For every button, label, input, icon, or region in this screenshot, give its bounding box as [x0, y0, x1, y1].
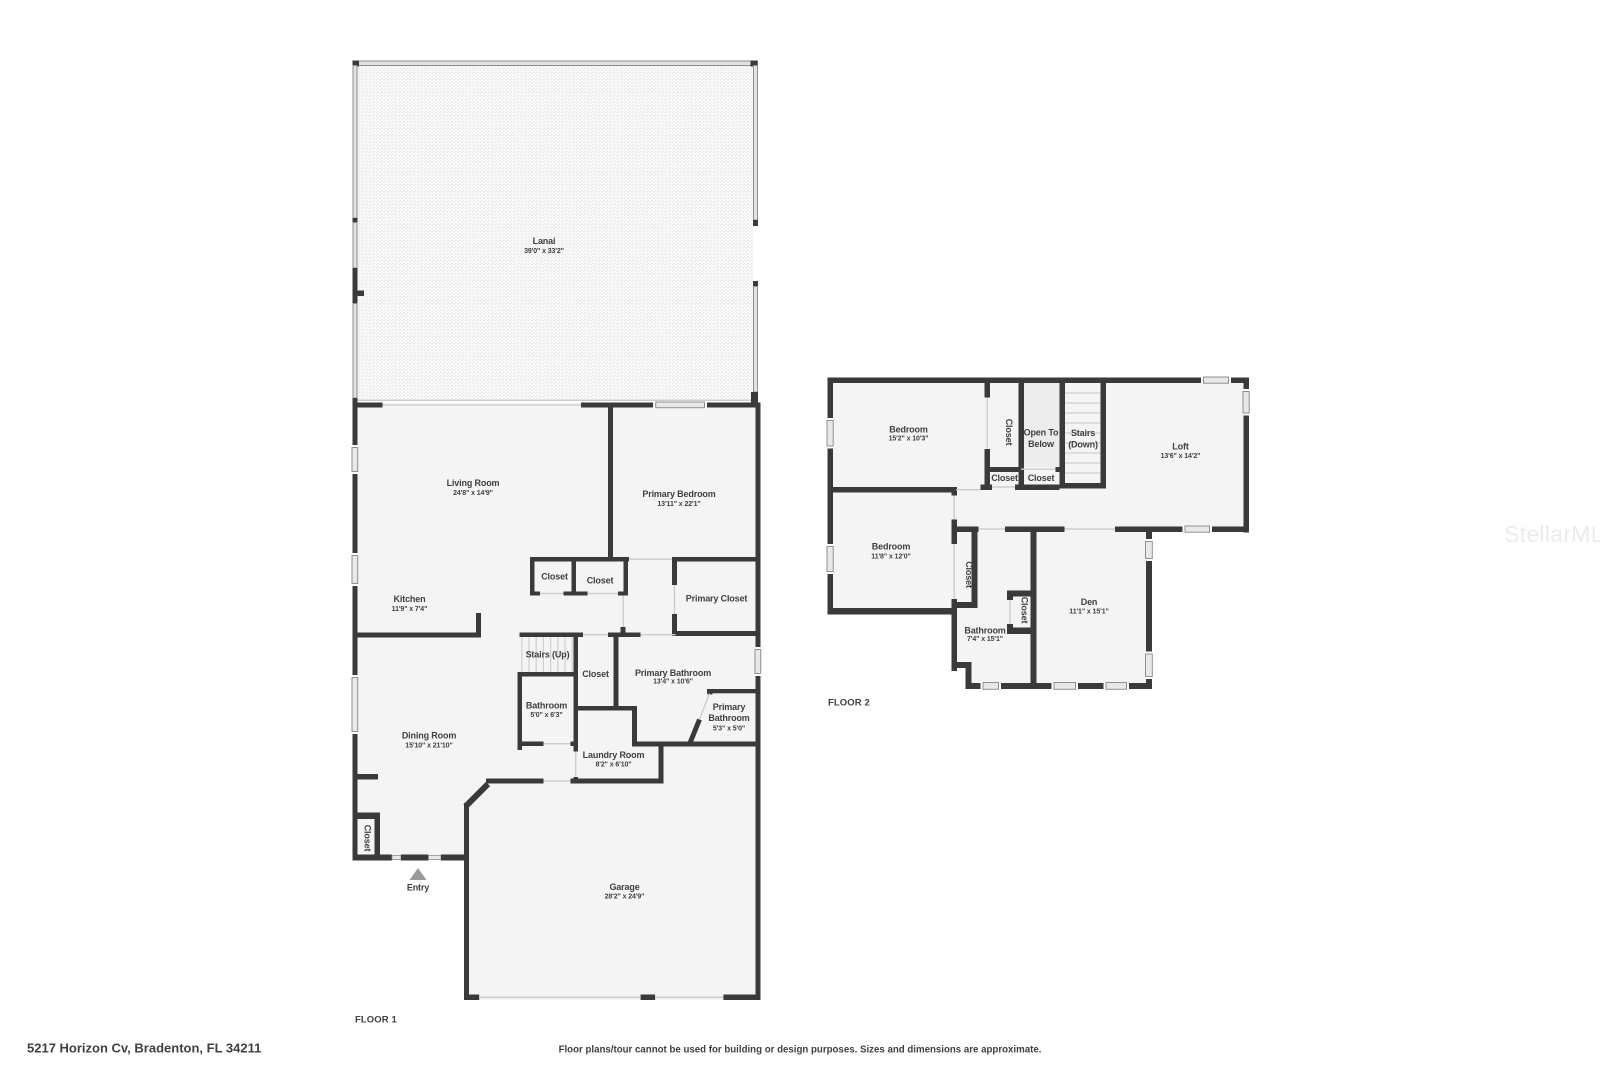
svg-text:Closet: Closet	[1028, 473, 1055, 483]
svg-text:15'2" x 10'3": 15'2" x 10'3"	[889, 436, 929, 443]
svg-text:Stairs (Up): Stairs (Up)	[526, 650, 570, 660]
svg-text:Den: Den	[1081, 597, 1098, 607]
svg-text:11'1" x 15'1": 11'1" x 15'1"	[1069, 609, 1108, 616]
svg-text:Living Room: Living Room	[447, 478, 500, 488]
svg-text:Bathroom: Bathroom	[964, 626, 1005, 636]
svg-text:FLOOR 1: FLOOR 1	[355, 1014, 397, 1025]
svg-text:5'0" x 6'3": 5'0" x 6'3"	[530, 712, 562, 719]
svg-text:13'4" x 10'6": 13'4" x 10'6"	[653, 679, 693, 686]
svg-text:39'0" x 33'2": 39'0" x 33'2"	[524, 248, 564, 255]
svg-text:FLOOR 2: FLOOR 2	[828, 697, 870, 708]
svg-text:5217 Horizon Cv, Bradenton, FL: 5217 Horizon Cv, Bradenton, FL 34211	[27, 1041, 261, 1056]
svg-text:Primary: Primary	[713, 702, 746, 712]
svg-text:Bedroom: Bedroom	[889, 425, 928, 435]
svg-text:Stairs: Stairs	[1071, 428, 1095, 438]
svg-text:Below: Below	[1028, 439, 1055, 449]
svg-text:Loft: Loft	[1172, 442, 1189, 452]
svg-text:Closet: Closet	[991, 473, 1018, 483]
svg-text:Laundry Room: Laundry Room	[583, 750, 645, 760]
svg-text:Primary Bathroom: Primary Bathroom	[635, 668, 711, 678]
svg-text:Primary Closet: Primary Closet	[686, 594, 748, 604]
svg-text:Primary Bedroom: Primary Bedroom	[642, 489, 715, 499]
svg-text:Dining Room: Dining Room	[402, 731, 456, 741]
svg-text:(Down): (Down)	[1068, 440, 1098, 450]
svg-text:Closet: Closet	[582, 669, 609, 679]
svg-text:Closet: Closet	[964, 561, 974, 588]
svg-text:Closet: Closet	[587, 576, 614, 586]
svg-text:Closet: Closet	[541, 572, 568, 582]
svg-text:11'9" x 7'4": 11'9" x 7'4"	[392, 606, 428, 613]
svg-text:5'3" x 5'0": 5'3" x 5'0"	[713, 725, 745, 732]
svg-text:Kitchen: Kitchen	[394, 594, 426, 604]
svg-text:15'10" x 21'10": 15'10" x 21'10"	[405, 743, 452, 750]
svg-text:Bathroom: Bathroom	[526, 701, 567, 711]
svg-text:Closet: Closet	[1020, 597, 1030, 624]
svg-text:24'8" x 14'9": 24'8" x 14'9"	[453, 490, 493, 497]
svg-text:Open To: Open To	[1024, 428, 1059, 438]
svg-text:Closet: Closet	[363, 825, 373, 852]
svg-text:28'2" x 24'9": 28'2" x 24'9"	[605, 894, 645, 901]
svg-text:13'6" x 14'2": 13'6" x 14'2"	[1161, 453, 1201, 460]
svg-text:7'4" x 15'1": 7'4" x 15'1"	[967, 636, 1003, 643]
svg-text:Floor plans/tour cannot be use: Floor plans/tour cannot be used for buil…	[559, 1044, 1042, 1055]
svg-text:Garage: Garage	[609, 882, 639, 892]
svg-text:Bathroom: Bathroom	[708, 713, 749, 723]
svg-text:Entry: Entry	[407, 883, 429, 893]
svg-text:StellarMLS: StellarMLS	[1504, 521, 1600, 547]
svg-text:Closet: Closet	[1004, 419, 1014, 446]
svg-text:8'2" x 6'10": 8'2" x 6'10"	[595, 762, 631, 769]
svg-text:Lanai: Lanai	[533, 236, 556, 246]
svg-text:11'8" x 12'0": 11'8" x 12'0"	[871, 554, 910, 561]
svg-text:13'11" x 22'1": 13'11" x 22'1"	[657, 501, 700, 508]
svg-text:Bedroom: Bedroom	[872, 542, 911, 552]
